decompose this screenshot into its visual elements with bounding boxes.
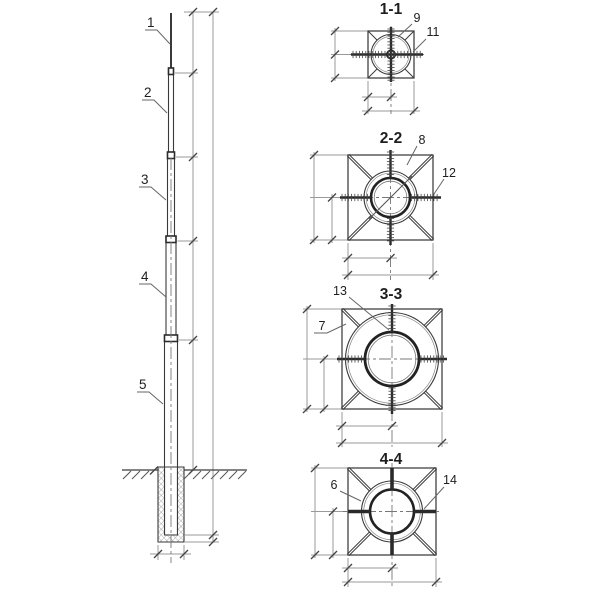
section-title-2-2: 2-2 [380, 130, 402, 147]
ground-hatch-stroke [141, 471, 149, 479]
part-leader-1 [145, 30, 170, 44]
section-title-1-1: 1-1 [380, 1, 403, 18]
pole-joint-collar-2 [168, 152, 175, 159]
part-leader-5 [137, 392, 163, 404]
pole-joint-collar-1 [169, 68, 174, 75]
ground-hatch-stroke [220, 471, 228, 479]
callout-12: 12 [442, 166, 456, 180]
ground-hatch-stroke [229, 471, 237, 479]
part-label-3: 3 [141, 172, 149, 187]
callout-14: 14 [443, 473, 457, 487]
part-label-4: 4 [141, 269, 149, 284]
part-label-1: 1 [147, 15, 155, 30]
section-title-3-3: 3-3 [380, 286, 403, 303]
ground-hatch-stroke [132, 471, 140, 479]
callout-8: 8 [419, 133, 426, 147]
part-leader-3 [139, 187, 166, 200]
technical-drawing-page: 1 2 3 4 5 1-1 9 11 2-2 8 12 [0, 0, 600, 600]
section-title-4-4: 4-4 [380, 451, 403, 468]
ground-hatch-stroke [211, 471, 219, 479]
callout-6: 6 [331, 478, 338, 492]
section-view-3-3: 3-3 13 7 [314, 284, 447, 447]
callout-11: 11 [427, 25, 440, 39]
callout-leader-11 [413, 39, 426, 52]
ground-hatch-stroke [123, 471, 131, 479]
part-label-5: 5 [139, 377, 147, 392]
ground-hatch-stroke [202, 471, 210, 479]
callout-13: 13 [333, 284, 347, 298]
ground-hatch-stroke [238, 471, 246, 479]
callout-9: 9 [414, 11, 421, 25]
part-label-2: 2 [144, 85, 152, 100]
callout-7: 7 [319, 319, 326, 333]
mast-technical-drawing: 1 2 3 4 5 1-1 9 11 2-2 8 12 [0, 0, 600, 600]
part-leader-2 [142, 100, 167, 113]
pole-section-2 [169, 68, 174, 157]
ground-hatch-stroke [193, 471, 201, 479]
part-leader-4 [139, 284, 166, 297]
